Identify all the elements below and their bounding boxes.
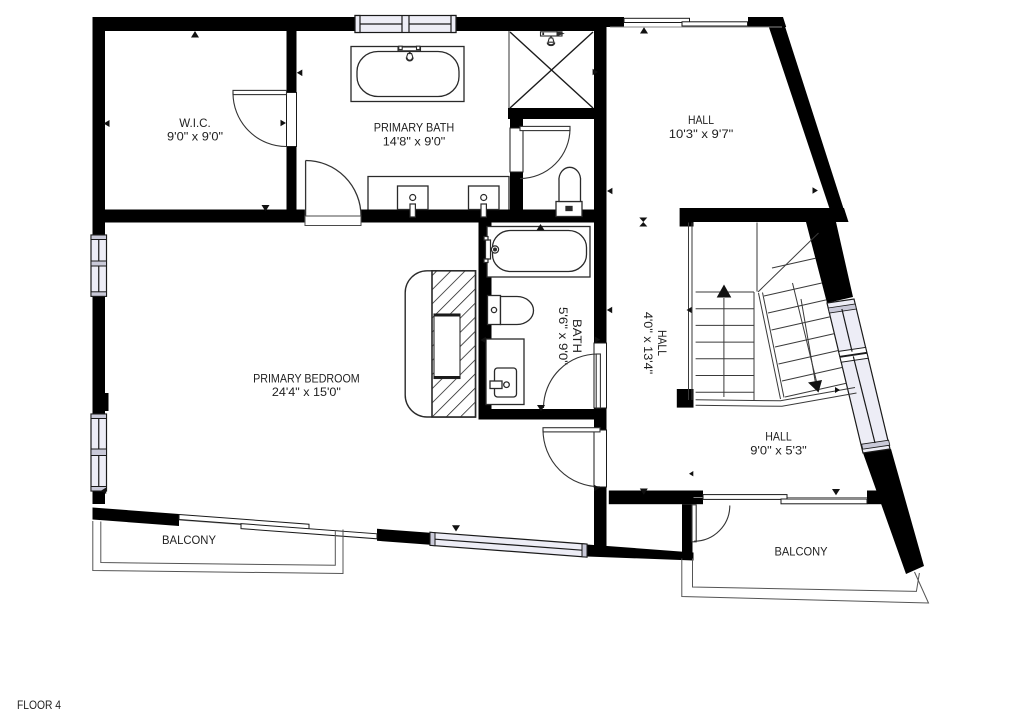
svg-text:BATH: BATH — [570, 319, 584, 353]
svg-text:14'8" x 9'0": 14'8" x 9'0" — [383, 134, 446, 148]
svg-text:PRIMARY BATH: PRIMARY BATH — [374, 121, 455, 135]
svg-text:HALL: HALL — [655, 330, 669, 356]
svg-text:HALL: HALL — [688, 113, 714, 127]
svg-text:BALCONY: BALCONY — [775, 545, 828, 559]
svg-text:9'0" x 9'0": 9'0" x 9'0" — [167, 130, 223, 144]
svg-text:9'0" x 5'3": 9'0" x 5'3" — [750, 443, 807, 457]
svg-text:4'0" x 13'4": 4'0" x 13'4" — [641, 312, 655, 374]
svg-text:5'6" x 9'0": 5'6" x 9'0" — [556, 307, 570, 365]
svg-text:10'3" x 9'7": 10'3" x 9'7" — [669, 127, 734, 141]
svg-text:PRIMARY BEDROOM: PRIMARY BEDROOM — [253, 371, 360, 385]
svg-text:HALL: HALL — [765, 429, 792, 443]
svg-text:24'4" x 15'0": 24'4" x 15'0" — [272, 385, 341, 399]
svg-text:BALCONY: BALCONY — [162, 533, 216, 547]
svg-text:FLOOR 4: FLOOR 4 — [17, 698, 61, 712]
svg-text:W.I.C.: W.I.C. — [179, 116, 211, 130]
